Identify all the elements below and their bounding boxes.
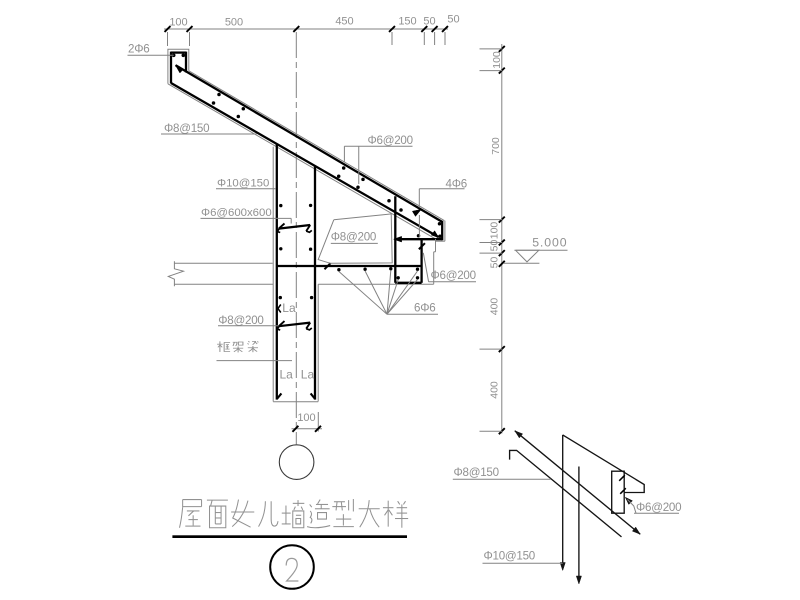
svg-text:Φ6@600x600: Φ6@600x600 <box>201 207 272 219</box>
svg-text:La: La <box>282 301 296 315</box>
svg-text:100: 100 <box>491 51 503 69</box>
svg-text:100: 100 <box>169 16 187 28</box>
svg-text:6Φ6: 6Φ6 <box>414 301 435 314</box>
svg-text:500: 500 <box>225 16 243 28</box>
svg-text:Φ8@200: Φ8@200 <box>218 314 263 327</box>
svg-text:100: 100 <box>489 222 501 240</box>
svg-text:Φ6@200: Φ6@200 <box>431 269 476 282</box>
svg-text:Φ6@200: Φ6@200 <box>636 501 681 514</box>
svg-text:Φ10@150: Φ10@150 <box>217 178 269 190</box>
svg-text:50: 50 <box>489 240 501 252</box>
svg-text:50: 50 <box>423 15 435 27</box>
svg-text:400: 400 <box>489 381 501 399</box>
svg-text:La: La <box>280 368 294 382</box>
svg-text:Φ8@150: Φ8@150 <box>164 122 209 135</box>
svg-text:100: 100 <box>297 412 315 424</box>
svg-text:Φ10@150: Φ10@150 <box>484 550 536 563</box>
svg-text:2Φ6: 2Φ6 <box>128 43 149 56</box>
svg-text:150: 150 <box>398 15 416 27</box>
svg-text:Φ6@200: Φ6@200 <box>368 134 413 147</box>
svg-text:700: 700 <box>490 137 502 155</box>
svg-text:La: La <box>301 368 315 382</box>
svg-text:Φ8@150: Φ8@150 <box>454 466 499 479</box>
svg-text:400: 400 <box>489 298 501 316</box>
svg-text:50: 50 <box>489 257 501 269</box>
svg-text:450: 450 <box>335 15 353 27</box>
svg-text:50: 50 <box>447 14 459 26</box>
svg-text:5.000: 5.000 <box>532 235 567 249</box>
svg-text:Φ8@200: Φ8@200 <box>331 231 376 244</box>
